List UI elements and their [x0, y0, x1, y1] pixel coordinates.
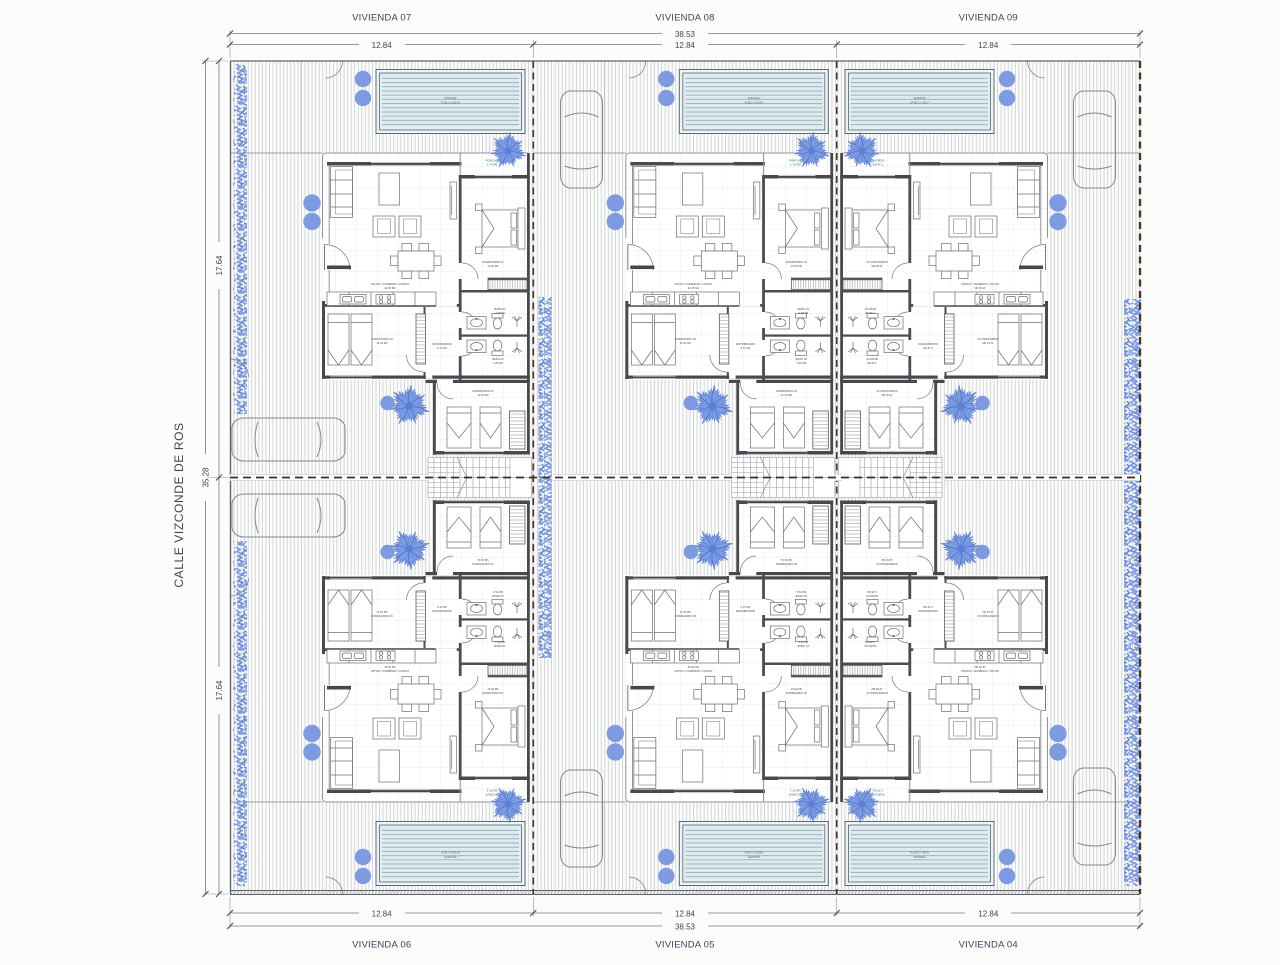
svg-text:12.84: 12.84	[978, 910, 999, 919]
svg-text:CALLE VIZCONDE DE ROS: CALLE VIZCONDE DE ROS	[172, 422, 186, 587]
svg-text:VIVIENDA 08: VIVIENDA 08	[655, 13, 714, 24]
svg-text:12.84: 12.84	[978, 41, 999, 50]
svg-text:VIVIENDA 05: VIVIENDA 05	[655, 940, 714, 951]
svg-text:12.84: 12.84	[372, 910, 393, 919]
svg-text:VIVIENDA 06: VIVIENDA 06	[352, 940, 411, 951]
svg-text:38.53: 38.53	[675, 923, 696, 932]
svg-text:VIVIENDA 04: VIVIENDA 04	[959, 940, 1018, 951]
svg-text:VIVIENDA 07: VIVIENDA 07	[352, 13, 411, 24]
svg-text:12.84: 12.84	[675, 910, 696, 919]
svg-text:VIVIENDA 09: VIVIENDA 09	[959, 13, 1018, 24]
svg-text:17.64: 17.64	[215, 680, 224, 701]
svg-text:35.28: 35.28	[202, 467, 211, 488]
svg-text:12.84: 12.84	[675, 41, 696, 50]
svg-text:12.84: 12.84	[372, 41, 393, 50]
svg-text:38.53: 38.53	[675, 30, 696, 39]
svg-text:17.64: 17.64	[215, 255, 224, 276]
